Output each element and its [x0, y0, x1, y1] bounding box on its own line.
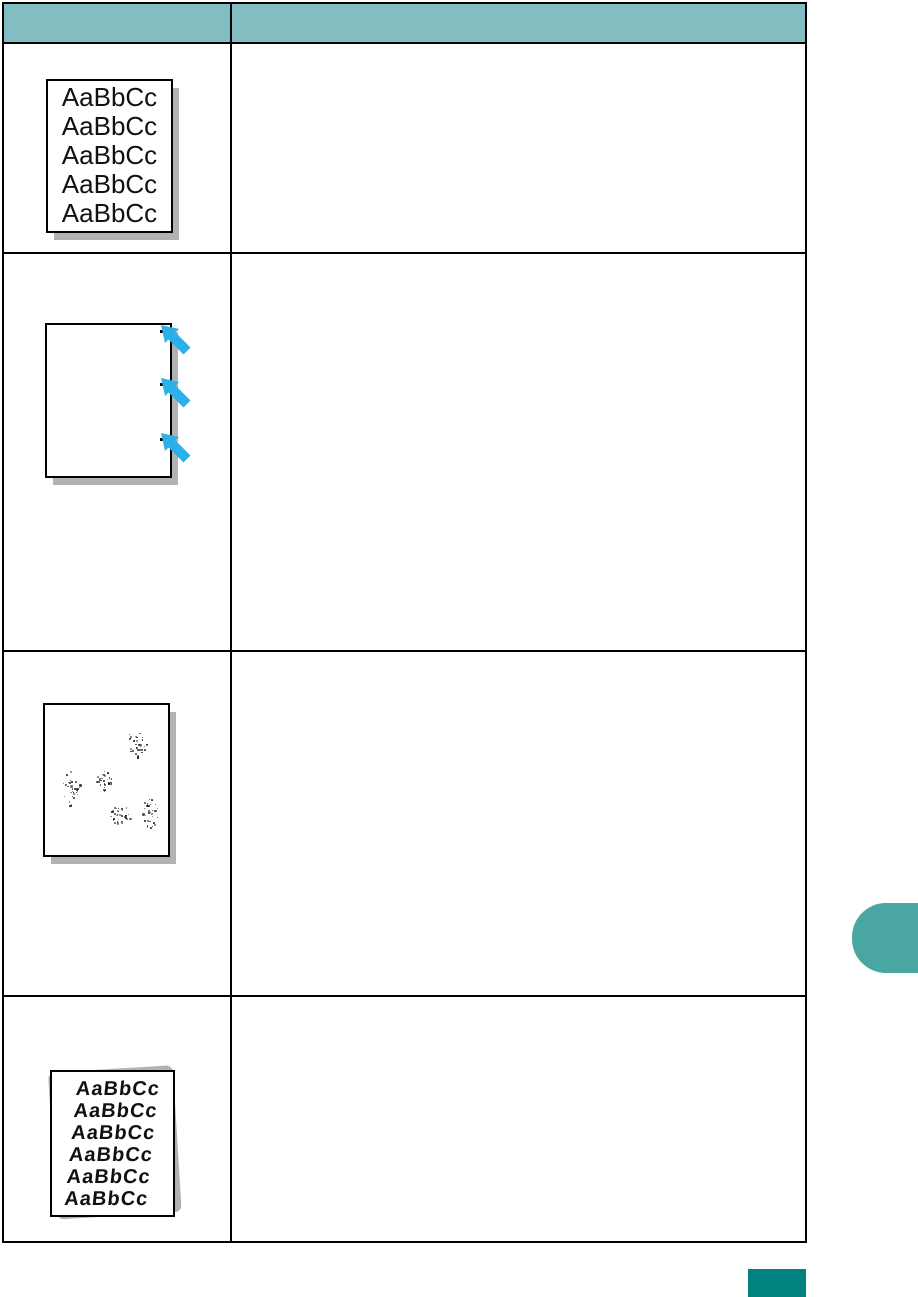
print-sample-background-scatter: [43, 703, 170, 857]
sample-text-line: AaBbCc: [56, 1078, 179, 1100]
problem-cell: [4, 254, 232, 650]
print-sample-repetitive-defects: [45, 323, 172, 478]
defect-pointer-arrow-icon: [160, 377, 193, 410]
sample-text-line: AaBbCc: [45, 1188, 168, 1210]
sample-text: AaBbCcAaBbCcAaBbCcAaBbCcAaBbCcAaBbCc: [45, 1072, 181, 1210]
sample-text-line: AaBbCc: [48, 141, 171, 170]
defect-pointer-arrow-icon: [160, 432, 193, 465]
sample-text: AaBbCcAaBbCcAaBbCcAaBbCcAaBbCc: [48, 81, 171, 228]
sample-text-line: AaBbCc: [54, 1100, 177, 1122]
solution-cell: [232, 44, 805, 252]
table-row: [4, 652, 805, 997]
sample-text-line: AaBbCc: [48, 112, 171, 141]
header-solution-cell: [232, 4, 805, 42]
print-quality-table: AaBbCcAaBbCcAaBbCcAaBbCcAaBbCc AaB: [2, 2, 807, 1243]
page-number-marker: [748, 1269, 806, 1297]
print-sample-misformed-characters: AaBbCcAaBbCcAaBbCcAaBbCcAaBbCc: [46, 79, 173, 233]
sample-text-line: AaBbCc: [47, 1166, 170, 1188]
table-header-row: [4, 4, 805, 44]
sample-text-line: AaBbCc: [49, 1144, 172, 1166]
solution-cell: [232, 997, 805, 1241]
table-row: AaBbCcAaBbCcAaBbCcAaBbCcAaBbCcAaBbCc: [4, 997, 805, 1241]
defect-pointer-arrow-icon: [160, 324, 193, 357]
skew-sample-wrap: AaBbCcAaBbCcAaBbCcAaBbCcAaBbCcAaBbCc: [4, 997, 230, 1241]
sample-text-line: AaBbCc: [52, 1122, 175, 1144]
solution-cell: [232, 254, 805, 650]
section-tab: [852, 903, 918, 973]
solution-cell: [232, 652, 805, 995]
table-row: [4, 254, 805, 652]
sample-text-line: AaBbCc: [48, 199, 171, 228]
problem-cell: AaBbCcAaBbCcAaBbCcAaBbCcAaBbCc: [4, 44, 232, 252]
table-row: AaBbCcAaBbCcAaBbCcAaBbCcAaBbCc: [4, 44, 805, 254]
sample-text-line: AaBbCc: [48, 170, 171, 199]
manual-page: AaBbCcAaBbCcAaBbCcAaBbCcAaBbCc AaB: [0, 0, 918, 1297]
print-sample-page-skew: AaBbCcAaBbCcAaBbCcAaBbCcAaBbCcAaBbCc: [50, 1070, 175, 1217]
problem-cell: AaBbCcAaBbCcAaBbCcAaBbCcAaBbCcAaBbCc: [4, 997, 232, 1241]
header-problem-cell: [4, 4, 232, 42]
problem-cell: [4, 652, 232, 995]
sample-text-line: AaBbCc: [48, 83, 171, 112]
